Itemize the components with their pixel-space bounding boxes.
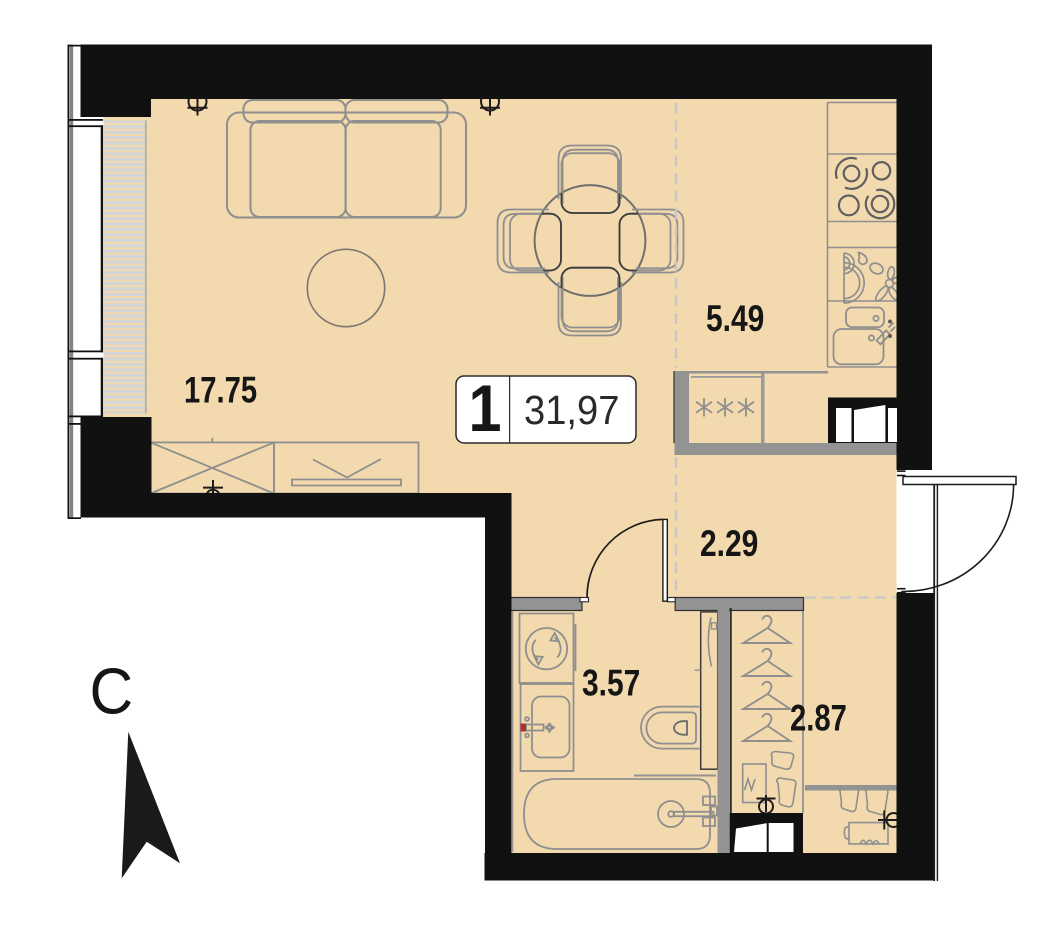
svg-text:5.49: 5.49 [706, 299, 764, 340]
svg-text:1: 1 [469, 372, 502, 446]
svg-text:2.29: 2.29 [700, 524, 758, 565]
svg-text:17.75: 17.75 [184, 370, 257, 411]
svg-text:3.57: 3.57 [582, 664, 640, 705]
svg-text:2.87: 2.87 [790, 698, 847, 739]
svg-text:31,97: 31,97 [524, 388, 619, 434]
svg-text:C: C [90, 655, 134, 727]
